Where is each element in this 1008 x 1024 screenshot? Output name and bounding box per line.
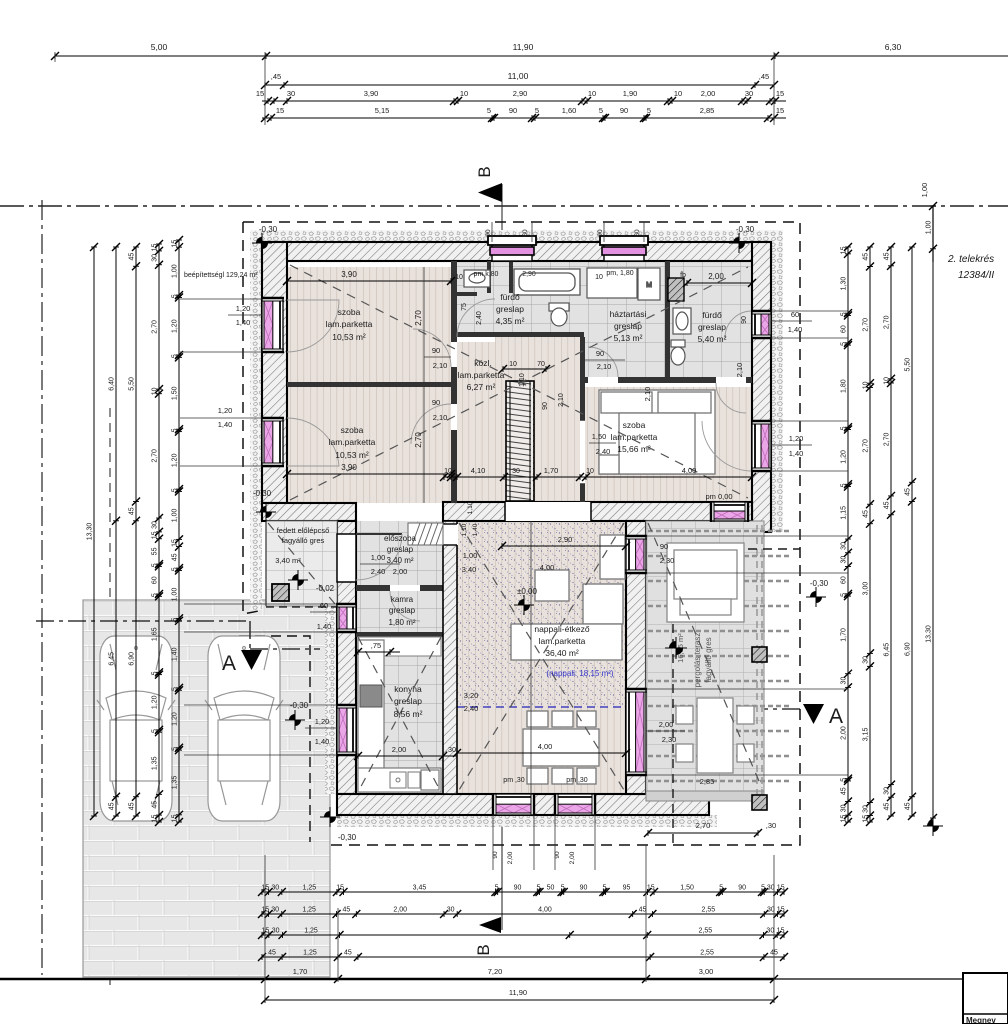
svg-text:90: 90 — [741, 316, 748, 324]
svg-text:,30: ,30 — [446, 745, 456, 754]
svg-text:szoba: szoba — [338, 307, 361, 317]
svg-text:90: 90 — [514, 885, 522, 892]
svg-text:nappali-étkező: nappali-étkező — [534, 624, 590, 634]
svg-text:45: 45 — [905, 802, 912, 810]
svg-text:lam.parketta: lam.parketta — [611, 432, 658, 442]
svg-text:10: 10 — [586, 468, 594, 475]
svg-text:pm, 1,80: pm, 1,80 — [606, 270, 633, 277]
svg-text:2,40: 2,40 — [476, 311, 483, 325]
svg-text:2,10: 2,10 — [433, 413, 448, 422]
svg-text:-0,02: -0,02 — [316, 584, 335, 593]
svg-text:2,70: 2,70 — [884, 315, 891, 329]
svg-text:4,35 m²: 4,35 m² — [496, 316, 525, 326]
svg-text:2,55: 2,55 — [702, 907, 716, 914]
svg-text:greslap: greslap — [496, 304, 524, 314]
svg-text:3,45: 3,45 — [413, 885, 427, 892]
svg-text:60: 60 — [522, 229, 529, 237]
svg-text:5,50: 5,50 — [905, 358, 912, 372]
svg-text:1,10: 1,10 — [461, 523, 468, 536]
svg-text:beépítettségl 129,24 m²: beépítettségl 129,24 m² — [184, 272, 258, 279]
svg-text:30: 30 — [841, 804, 848, 812]
svg-text:1,00: 1,00 — [172, 264, 179, 278]
svg-text:2,40: 2,40 — [596, 447, 611, 456]
svg-text:45: 45 — [905, 488, 912, 496]
svg-text:55: 55 — [152, 547, 159, 555]
svg-text:5: 5 — [647, 106, 651, 115]
svg-text:1,25: 1,25 — [303, 885, 317, 892]
svg-text:±0,00: ±0,00 — [517, 587, 538, 596]
svg-text:,45: ,45 — [759, 72, 769, 81]
svg-text:1,40: 1,40 — [236, 318, 251, 327]
svg-text:2,10: 2,10 — [558, 393, 565, 407]
svg-text:2,00: 2,00 — [393, 907, 407, 914]
svg-text:fürdő: fürdő — [500, 292, 520, 302]
svg-text:2,00: 2,00 — [393, 567, 408, 576]
svg-text:30: 30 — [272, 928, 280, 935]
svg-text:3,00: 3,00 — [699, 967, 714, 976]
svg-text:45: 45 — [109, 802, 116, 810]
svg-text:12384/II: 12384/II — [958, 270, 994, 281]
svg-text:greslap: greslap — [389, 606, 416, 615]
svg-text:lam.parketta: lam.parketta — [329, 437, 376, 447]
svg-text:10: 10 — [595, 274, 603, 281]
svg-text:2,00: 2,00 — [569, 851, 576, 864]
svg-text:90: 90 — [432, 398, 440, 407]
svg-text:1,25: 1,25 — [302, 907, 316, 914]
svg-text:2,10: 2,10 — [433, 361, 448, 370]
svg-text:90: 90 — [580, 885, 588, 892]
svg-text:greslap: greslap — [387, 545, 414, 554]
svg-text:15: 15 — [776, 89, 784, 98]
svg-text:1,00: 1,00 — [920, 183, 929, 198]
svg-text:4,10: 4,10 — [471, 466, 486, 475]
svg-text:greslap: greslap — [614, 321, 642, 331]
svg-text:szoba: szoba — [341, 425, 364, 435]
svg-text:6,45: 6,45 — [884, 643, 891, 657]
svg-text:1,25: 1,25 — [303, 950, 317, 957]
svg-text:B: B — [475, 166, 494, 177]
svg-text:4,00: 4,00 — [538, 742, 553, 751]
svg-text:1,20: 1,20 — [218, 406, 233, 415]
svg-text:közl.: közl. — [474, 358, 491, 368]
svg-text:5,13 m²: 5,13 m² — [614, 333, 643, 343]
svg-text:30: 30 — [841, 542, 848, 550]
svg-text:10: 10 — [588, 89, 596, 98]
svg-text:1,00: 1,00 — [172, 588, 179, 602]
svg-text:5: 5 — [599, 106, 603, 115]
svg-text:10: 10 — [460, 89, 468, 98]
svg-text:6,90: 6,90 — [905, 642, 912, 656]
svg-text:-0,30: -0,30 — [290, 701, 309, 710]
svg-text:45: 45 — [639, 907, 647, 914]
svg-text:2,70: 2,70 — [696, 821, 711, 830]
svg-text:30: 30 — [152, 254, 159, 262]
svg-text:6,30: 6,30 — [885, 42, 902, 52]
svg-text:45: 45 — [152, 801, 159, 809]
svg-text:1,30: 1,30 — [841, 277, 848, 291]
svg-text:greslap: greslap — [394, 696, 422, 706]
svg-text:30: 30 — [841, 556, 848, 564]
svg-text:7,20: 7,20 — [488, 967, 503, 976]
svg-text:B: B — [474, 944, 493, 955]
svg-text:30: 30 — [287, 89, 295, 98]
svg-text:3,90: 3,90 — [364, 89, 379, 98]
svg-text:lam.parketta: lam.parketta — [539, 636, 586, 646]
svg-text:45: 45 — [344, 950, 352, 957]
svg-text:45: 45 — [172, 553, 179, 561]
svg-text:1,35: 1,35 — [152, 756, 159, 770]
svg-text:2,00: 2,00 — [507, 851, 514, 864]
svg-text:háztartási: háztartási — [610, 309, 647, 319]
svg-text:4,00: 4,00 — [538, 907, 552, 914]
svg-text:2,85: 2,85 — [700, 777, 715, 786]
svg-text:30: 30 — [766, 928, 774, 935]
svg-text:15,66 m²: 15,66 m² — [617, 444, 651, 454]
svg-text:1,20: 1,20 — [236, 304, 251, 313]
svg-text:1,70: 1,70 — [293, 967, 308, 976]
svg-text:5: 5 — [487, 106, 491, 115]
svg-text:10: 10 — [444, 468, 452, 475]
svg-text:1,80: 1,80 — [841, 379, 848, 393]
svg-text:1,70: 1,70 — [841, 628, 848, 642]
svg-text:2,70: 2,70 — [863, 318, 870, 332]
svg-text:8,56 m²: 8,56 m² — [394, 709, 423, 719]
svg-text:3,20: 3,20 — [464, 691, 479, 700]
svg-text:2,90: 2,90 — [513, 89, 528, 98]
svg-text:-0,30: -0,30 — [259, 225, 278, 234]
svg-text:90: 90 — [509, 106, 517, 115]
svg-text:45: 45 — [343, 907, 351, 914]
svg-text:lam.parketta: lam.parketta — [458, 370, 505, 380]
svg-text:1,10: 1,10 — [519, 373, 526, 387]
svg-text:45: 45 — [129, 507, 136, 515]
svg-text:45: 45 — [884, 501, 891, 509]
svg-text:pm ,30: pm ,30 — [503, 777, 525, 784]
svg-text:3,90: 3,90 — [341, 463, 357, 472]
svg-text:2,00: 2,00 — [392, 745, 407, 754]
svg-text:60: 60 — [841, 325, 848, 333]
svg-text:pergolás terasz: pergolás terasz — [693, 633, 702, 688]
svg-text:pm ,30: pm ,30 — [566, 777, 588, 784]
svg-text:15: 15 — [276, 106, 284, 115]
svg-text:50: 50 — [547, 885, 555, 892]
svg-text:1,20: 1,20 — [315, 717, 330, 726]
svg-text:60: 60 — [791, 310, 799, 319]
svg-text:A: A — [222, 652, 236, 675]
svg-text:1,10: 1,10 — [467, 501, 474, 514]
svg-text:1,60: 1,60 — [562, 106, 577, 115]
svg-text:3,40 m²: 3,40 m² — [275, 556, 301, 565]
svg-text:90: 90 — [432, 346, 440, 355]
svg-text:3,15: 3,15 — [863, 728, 870, 742]
svg-text:15: 15 — [776, 106, 784, 115]
svg-text:pm k,80: pm k,80 — [474, 271, 499, 278]
svg-text:11,90: 11,90 — [509, 988, 527, 997]
svg-text:90: 90 — [660, 542, 668, 551]
svg-text:2,00: 2,00 — [659, 720, 674, 729]
svg-text:(nappali: 18,15 m²): (nappali: 18,15 m²) — [546, 669, 613, 678]
svg-text:15: 15 — [256, 89, 264, 98]
svg-text:6,45: 6,45 — [109, 652, 116, 666]
svg-text:30: 30 — [745, 89, 753, 98]
svg-text:3,00: 3,00 — [863, 582, 870, 596]
svg-text:75: 75 — [461, 303, 468, 311]
svg-text:13,30: 13,30 — [926, 625, 933, 643]
svg-text:60: 60 — [841, 576, 848, 584]
svg-text:1,00: 1,00 — [371, 553, 386, 562]
svg-text:pm 0,00: pm 0,00 — [705, 492, 732, 501]
svg-text:45: 45 — [863, 510, 870, 518]
svg-text:4,00: 4,00 — [540, 563, 555, 572]
svg-text:10: 10 — [674, 89, 682, 98]
svg-text:10: 10 — [509, 361, 517, 368]
svg-text:1,35: 1,35 — [172, 776, 179, 790]
svg-text:10,53 m²: 10,53 m² — [332, 332, 366, 342]
svg-text:1,00: 1,00 — [463, 551, 478, 560]
svg-text:6,90: 6,90 — [129, 652, 136, 666]
svg-text:30: 30 — [512, 468, 520, 475]
svg-text:1,20: 1,20 — [789, 434, 804, 443]
svg-text:90: 90 — [542, 402, 549, 410]
svg-text:30: 30 — [841, 677, 848, 685]
svg-text:1,15: 1,15 — [841, 506, 848, 520]
svg-text:fürdő: fürdő — [702, 310, 722, 320]
svg-text:1,40: 1,40 — [788, 325, 803, 334]
svg-text:2,70: 2,70 — [414, 432, 423, 448]
svg-text:1,90: 1,90 — [623, 89, 638, 98]
svg-text:1,70: 1,70 — [544, 466, 559, 475]
svg-text:1,40: 1,40 — [218, 420, 233, 429]
svg-text:lam.parketta: lam.parketta — [326, 319, 373, 329]
svg-text:1,00: 1,00 — [172, 509, 179, 523]
svg-text:6,40: 6,40 — [109, 377, 116, 391]
svg-text:A: A — [829, 705, 843, 728]
svg-text:1,20: 1,20 — [841, 450, 848, 464]
svg-text:45: 45 — [841, 787, 848, 795]
svg-text:1,20: 1,20 — [172, 712, 179, 726]
svg-text:95: 95 — [623, 885, 631, 892]
svg-text:1,50: 1,50 — [172, 386, 179, 400]
svg-text:2,40: 2,40 — [464, 704, 479, 713]
svg-text:10,53 m²: 10,53 m² — [335, 450, 369, 460]
svg-text:5,50: 5,50 — [129, 377, 136, 391]
svg-text:2,55: 2,55 — [699, 928, 713, 935]
svg-text:,30: ,30 — [766, 821, 776, 830]
svg-text:1,20: 1,20 — [172, 319, 179, 333]
svg-text:2,30: 2,30 — [662, 735, 677, 744]
svg-text:1,00: 1,00 — [926, 220, 933, 234]
svg-text:2,10: 2,10 — [735, 363, 744, 378]
svg-text:1,65: 1,65 — [152, 627, 159, 641]
svg-text:36,40 m²: 36,40 m² — [545, 648, 579, 658]
svg-text:-0,30: -0,30 — [253, 489, 272, 498]
svg-text:2,85: 2,85 — [700, 106, 715, 115]
svg-text:90: 90 — [597, 229, 604, 237]
svg-text:13,30: 13,30 — [87, 523, 94, 541]
svg-text:,45: ,45 — [271, 72, 281, 81]
svg-text:90: 90 — [738, 885, 746, 892]
svg-text:1,40: 1,40 — [317, 622, 332, 631]
svg-text:90: 90 — [620, 106, 628, 115]
svg-text:11,90: 11,90 — [513, 42, 534, 52]
svg-text:70: 70 — [537, 361, 545, 368]
svg-text:szoba: szoba — [623, 420, 646, 430]
svg-text:fedett előlépcső: fedett előlépcső — [277, 526, 330, 535]
svg-text:45: 45 — [884, 252, 891, 260]
svg-text:90: 90 — [596, 349, 604, 358]
svg-text:2,70: 2,70 — [152, 320, 159, 334]
svg-text:2,40: 2,40 — [371, 567, 386, 576]
svg-text:45: 45 — [129, 802, 136, 810]
svg-text:2,70: 2,70 — [152, 449, 159, 463]
svg-text:1,50: 1,50 — [680, 885, 694, 892]
svg-text:M: M — [646, 282, 652, 289]
svg-text:60: 60 — [320, 601, 328, 610]
svg-text:1,25: 1,25 — [304, 928, 318, 935]
svg-text:-0,30: -0,30 — [338, 833, 357, 842]
svg-text:1,40: 1,40 — [315, 737, 330, 746]
svg-text:2,10: 2,10 — [597, 362, 612, 371]
svg-text:45: 45 — [884, 803, 891, 811]
svg-text:2,30: 2,30 — [660, 556, 675, 565]
svg-text:30: 30 — [152, 521, 159, 529]
svg-text:1,40: 1,40 — [472, 523, 479, 536]
svg-text:5,15: 5,15 — [375, 106, 390, 115]
svg-text:10: 10 — [455, 274, 463, 281]
svg-text:2,70: 2,70 — [863, 439, 870, 453]
svg-text:2,00: 2,00 — [701, 89, 716, 98]
svg-text:60: 60 — [634, 229, 641, 237]
svg-text:1,40: 1,40 — [789, 449, 804, 458]
svg-text:greslap: greslap — [698, 322, 726, 332]
svg-text:4,00: 4,00 — [682, 466, 697, 475]
svg-text:1,20: 1,20 — [172, 453, 179, 467]
svg-text:1,40: 1,40 — [172, 647, 179, 661]
svg-text:3,90: 3,90 — [341, 270, 357, 279]
svg-text:90: 90 — [485, 229, 492, 237]
svg-text:fb: fb — [680, 272, 686, 279]
svg-text:2. telekrés: 2. telekrés — [947, 254, 994, 265]
svg-text:45: 45 — [268, 950, 276, 957]
svg-text:1,20: 1,20 — [152, 695, 159, 709]
svg-text:2,70: 2,70 — [884, 433, 891, 447]
svg-text:konyha: konyha — [394, 684, 422, 694]
svg-text:2,70: 2,70 — [414, 310, 423, 326]
svg-text:fagyálló gres: fagyálló gres — [704, 637, 713, 682]
svg-text:2,55: 2,55 — [700, 950, 714, 957]
svg-text:5,00: 5,00 — [151, 42, 168, 52]
svg-text:2,00: 2,00 — [708, 272, 724, 281]
svg-text:Megnev: Megnev — [966, 1016, 996, 1024]
svg-text:2,90: 2,90 — [522, 271, 536, 278]
svg-text:60: 60 — [152, 576, 159, 584]
svg-text:,75: ,75 — [371, 641, 381, 650]
svg-text:1,80 m²: 1,80 m² — [388, 618, 415, 627]
svg-text:11,00: 11,00 — [508, 71, 529, 81]
svg-text:6,27 m²: 6,27 m² — [467, 382, 496, 392]
svg-text:5,40 m²: 5,40 m² — [698, 334, 727, 344]
svg-text:45: 45 — [863, 253, 870, 261]
svg-text:-0,30: -0,30 — [736, 225, 755, 234]
svg-text:2,90: 2,90 — [558, 535, 573, 544]
svg-text:3,40: 3,40 — [462, 565, 477, 574]
svg-text:2,10: 2,10 — [643, 387, 652, 402]
svg-text:fagyálló gres: fagyálló gres — [282, 536, 325, 545]
svg-text:2,00: 2,00 — [841, 726, 848, 740]
svg-text:előszoba: előszoba — [384, 534, 417, 543]
svg-text:-0,30: -0,30 — [810, 579, 829, 588]
svg-text:1,50: 1,50 — [592, 432, 607, 441]
svg-text:45: 45 — [129, 253, 136, 261]
svg-text:kamra: kamra — [391, 595, 414, 604]
svg-text:5: 5 — [535, 106, 539, 115]
